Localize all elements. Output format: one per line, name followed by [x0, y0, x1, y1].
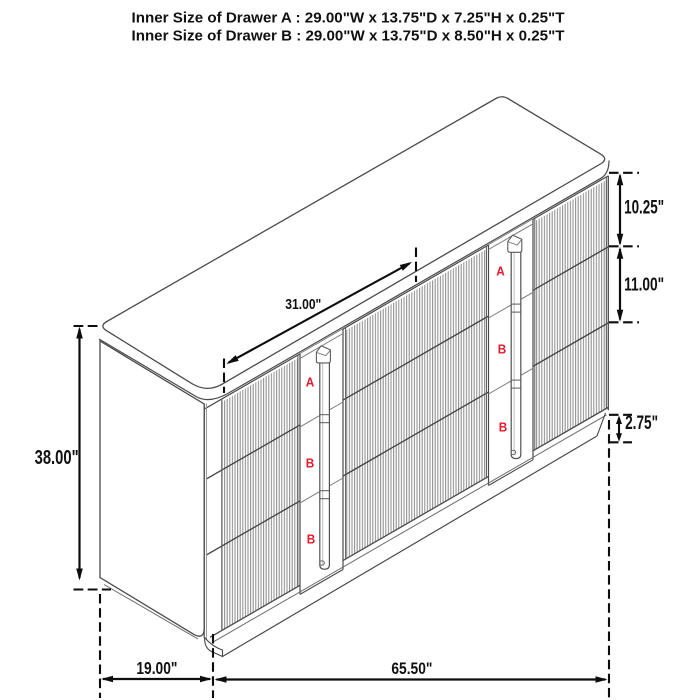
- svg-text:38.00": 38.00": [35, 446, 79, 469]
- svg-text:Inner Size of Drawer B : 29.00: Inner Size of Drawer B : 29.00"W x 13.75…: [132, 28, 565, 44]
- svg-text:Inner Size of Drawer A : 29.00: Inner Size of Drawer A : 29.00"W x 13.75…: [132, 10, 565, 26]
- svg-text:B: B: [307, 533, 316, 547]
- svg-text:10.25": 10.25": [624, 197, 664, 219]
- svg-text:B: B: [498, 343, 507, 357]
- svg-text:65.50": 65.50": [391, 659, 432, 678]
- svg-text:11.00": 11.00": [624, 273, 664, 294]
- svg-text:B: B: [306, 457, 315, 471]
- svg-text:A: A: [496, 265, 505, 279]
- svg-text:A: A: [306, 376, 315, 390]
- svg-text:31.00": 31.00": [285, 297, 321, 313]
- svg-text:B: B: [499, 421, 508, 435]
- svg-text:19.00": 19.00": [136, 658, 177, 678]
- svg-text:2.75": 2.75": [625, 413, 658, 434]
